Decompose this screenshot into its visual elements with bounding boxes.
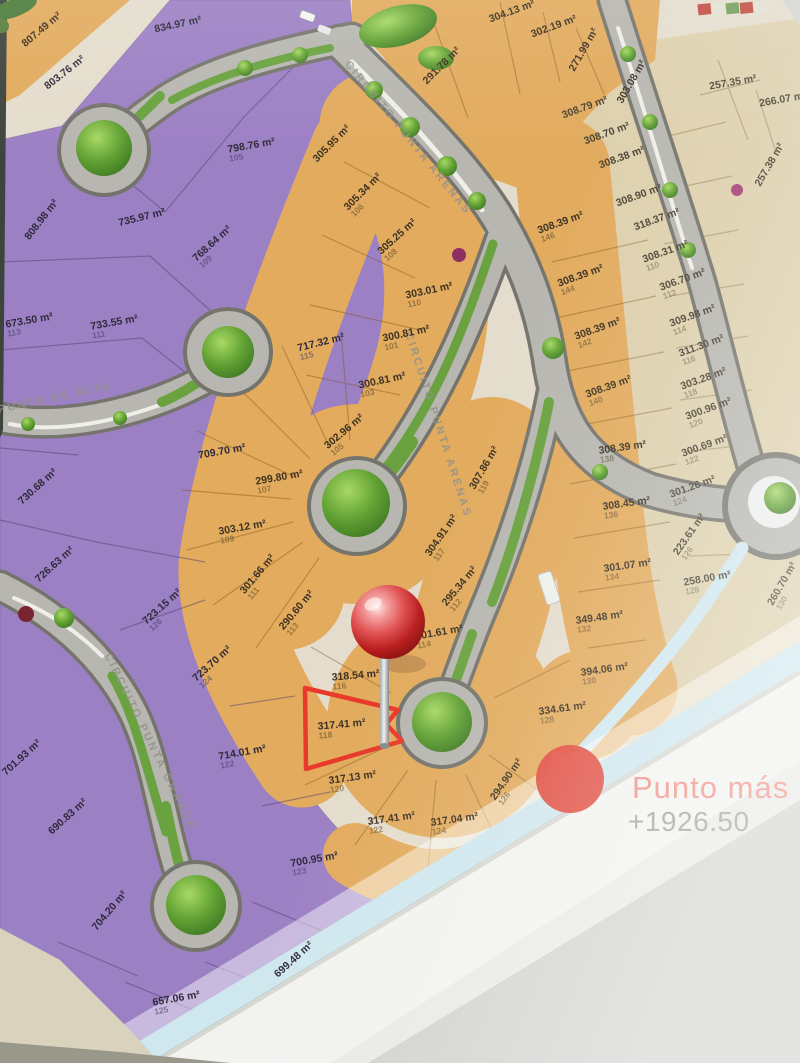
- punto-marker-circle: [536, 745, 604, 813]
- punto-annotation-title: Punto más b: [632, 770, 800, 806]
- punto-annotation-elevation: +1926.50: [628, 806, 750, 838]
- site-plan-photo: CIRCUITO PUNTA ARENASCIRCUITO PUNTA AREN…: [0, 0, 800, 1063]
- pin-stem: [380, 650, 389, 745]
- map-pin: [351, 585, 426, 749]
- pin-head: [351, 585, 425, 659]
